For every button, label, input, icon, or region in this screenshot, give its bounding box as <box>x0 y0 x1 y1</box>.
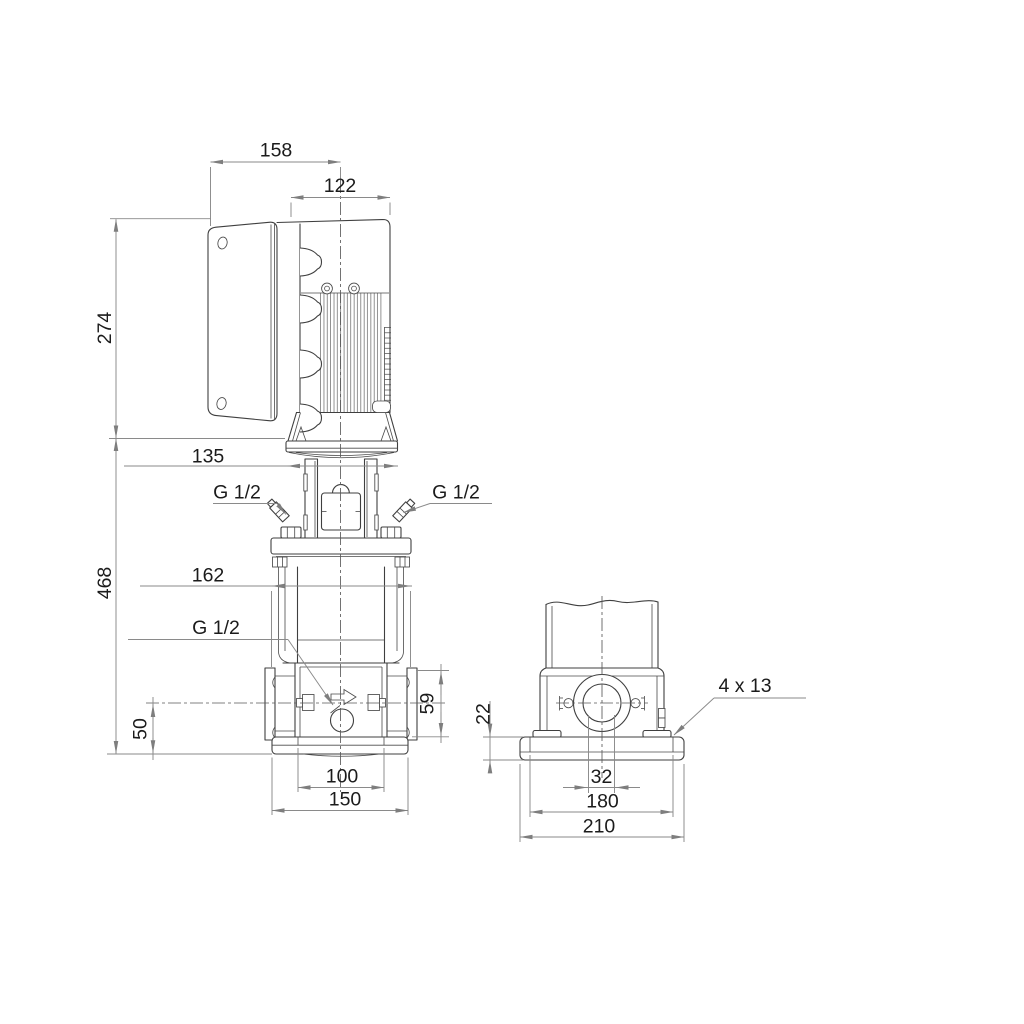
dim-210: 210 <box>583 816 616 838</box>
clamp-ring <box>286 441 398 452</box>
pump-base <box>265 663 417 740</box>
coupling-window <box>322 493 361 530</box>
label-g12-left: G 1/2 <box>213 482 261 504</box>
plug-nut-left <box>281 527 301 538</box>
motor-tab <box>373 401 391 413</box>
technical-drawing: 158 122 274 468 135 G 1/2 G 1/2 162 <box>0 0 1024 1024</box>
label-g12-drain: G 1/2 <box>192 617 240 639</box>
chamber-stack <box>279 567 404 663</box>
vent-plug-right <box>393 498 416 522</box>
front-view <box>146 180 448 792</box>
vent-plug-left <box>266 498 289 522</box>
dim-274: 274 <box>94 312 116 345</box>
motor-screw-icon <box>322 283 333 294</box>
side-view <box>520 596 684 778</box>
dim-50: 50 <box>130 718 152 740</box>
motor-stool <box>266 459 415 538</box>
dim-158: 158 <box>260 140 293 162</box>
gauge-plug-right <box>368 695 380 711</box>
dim-135: 135 <box>192 446 225 468</box>
label-g12-right: G 1/2 <box>432 482 480 504</box>
discharge-flange <box>387 668 417 740</box>
dim-122: 122 <box>324 175 357 197</box>
flow-direction-icon <box>331 690 356 705</box>
control-box <box>208 222 277 421</box>
dim-468: 468 <box>94 567 116 600</box>
motor-screw-icon <box>349 283 360 294</box>
gland-bumps <box>300 248 322 432</box>
suction-flange <box>265 668 295 740</box>
dim-100: 100 <box>326 766 359 788</box>
nameplate-clip <box>659 709 666 719</box>
dim-32: 32 <box>591 766 613 788</box>
dim-162: 162 <box>192 565 225 587</box>
flange-plate <box>271 538 411 567</box>
plug-nut-right <box>381 527 401 538</box>
drawing-page: 158 122 274 468 135 G 1/2 G 1/2 162 <box>0 0 1024 1024</box>
label-4x13: 4 x 13 <box>718 675 771 697</box>
gauge-plug-left <box>303 695 315 711</box>
drain-plug <box>331 709 354 732</box>
bedplate-front <box>272 737 408 756</box>
dim-150: 150 <box>329 789 362 811</box>
dim-180: 180 <box>586 791 619 813</box>
front-dimensions: 158 122 274 468 135 G 1/2 G 1/2 162 <box>94 140 492 816</box>
dim-59: 59 <box>417 693 439 715</box>
dim-22: 22 <box>473 703 495 725</box>
